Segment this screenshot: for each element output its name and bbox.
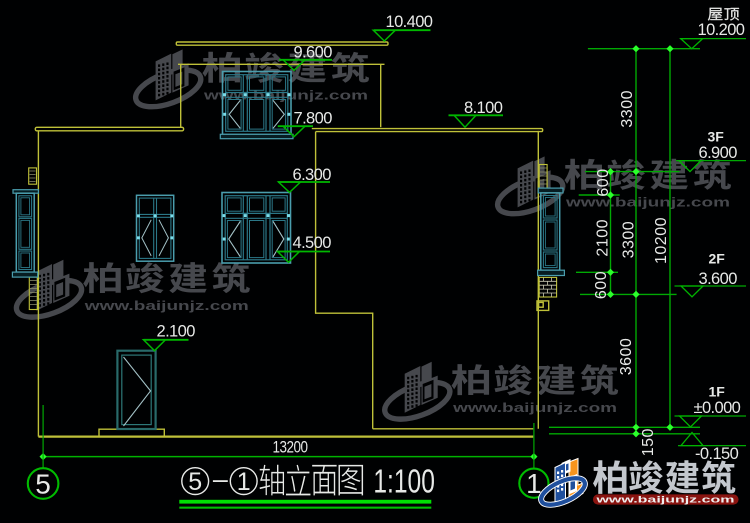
- svg-text:www.baijunjz.com: www.baijunjz.com: [565, 195, 730, 210]
- svg-text:150: 150: [640, 428, 657, 456]
- svg-text:1:100: 1:100: [373, 463, 435, 500]
- svg-text:13200: 13200: [273, 439, 308, 457]
- svg-text:600: 600: [593, 271, 610, 299]
- svg-text:9.600: 9.600: [294, 44, 333, 62]
- svg-text:2.100: 2.100: [157, 323, 196, 341]
- svg-text:3300: 3300: [619, 90, 636, 128]
- svg-text:1: 1: [237, 468, 251, 496]
- svg-text:-0.150: -0.150: [695, 445, 739, 463]
- svg-text:3F: 3F: [708, 129, 725, 145]
- svg-text:10200: 10200: [653, 217, 670, 264]
- svg-text:8.100: 8.100: [464, 99, 503, 117]
- svg-text:www.baijunjz.com: www.baijunjz.com: [595, 495, 735, 506]
- svg-text:www.baijunjz.com: www.baijunjz.com: [83, 298, 248, 313]
- svg-text:10.400: 10.400: [386, 13, 433, 31]
- svg-text:3600: 3600: [618, 338, 635, 376]
- svg-text:1F: 1F: [709, 384, 726, 400]
- svg-text:600: 600: [595, 168, 612, 196]
- svg-text:1: 1: [526, 468, 542, 499]
- svg-text:5: 5: [188, 468, 202, 496]
- svg-text:3.600: 3.600: [699, 270, 738, 288]
- svg-text:www.baijunjz.com: www.baijunjz.com: [452, 400, 617, 415]
- svg-text:2F: 2F: [709, 251, 726, 267]
- svg-text:7.800: 7.800: [294, 110, 333, 128]
- svg-text:3300: 3300: [620, 221, 637, 259]
- svg-text:10.200: 10.200: [698, 21, 745, 39]
- svg-text:4.500: 4.500: [293, 234, 332, 252]
- svg-text:2100: 2100: [594, 219, 611, 257]
- svg-text:6.300: 6.300: [293, 166, 332, 184]
- svg-text:6.900: 6.900: [699, 144, 738, 162]
- svg-text:5: 5: [35, 469, 51, 500]
- svg-text:±0.000: ±0.000: [694, 399, 741, 417]
